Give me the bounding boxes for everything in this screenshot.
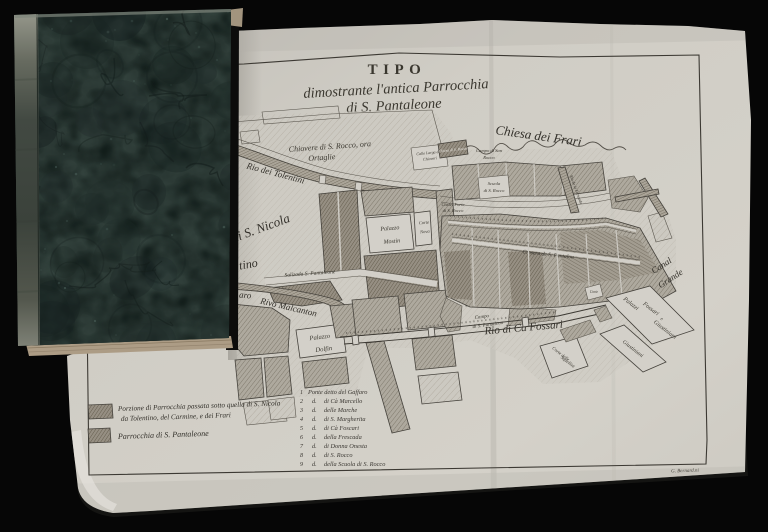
svg-text:d.: d.: [312, 425, 317, 432]
svg-text:Rocco: Rocco: [482, 155, 495, 160]
svg-text:delle Marche: delle Marche: [324, 407, 357, 414]
svg-text:3: 3: [299, 408, 303, 414]
svg-text:d.: d.: [312, 416, 317, 423]
svg-text:della Scuola di S. Rocco: della Scuola di S. Rocco: [324, 461, 385, 468]
svg-text:d.: d.: [312, 434, 317, 441]
svg-text:d.: d.: [312, 443, 317, 450]
svg-text:9: 9: [300, 462, 303, 468]
svg-text:di Donna Onesta: di Donna Onesta: [324, 443, 367, 450]
svg-text:aro: aro: [239, 290, 252, 301]
svg-text:Scuola: Scuola: [488, 181, 501, 186]
svg-text:4: 4: [300, 416, 303, 423]
svg-text:1: 1: [300, 390, 303, 396]
svg-text:di S. Rocco: di S. Rocco: [443, 208, 464, 213]
svg-text:d.: d.: [312, 398, 317, 405]
svg-text:di Cà Foscari: di Cà Foscari: [324, 425, 359, 432]
svg-text:8: 8: [300, 453, 303, 459]
svg-text:di S. Rocco: di S. Rocco: [324, 452, 353, 459]
svg-text:d.: d.: [312, 461, 317, 468]
svg-text:Ponte detto del Gaffaro: Ponte detto del Gaffaro: [307, 389, 367, 396]
svg-text:TIPO: TIPO: [368, 62, 427, 78]
svg-text:Corte: Corte: [590, 290, 599, 294]
svg-text:Campo di San: Campo di San: [476, 148, 503, 153]
svg-text:d.: d.: [312, 407, 317, 414]
svg-text:6: 6: [300, 435, 303, 441]
svg-text:2: 2: [300, 399, 303, 405]
svg-text:di Cà Marcello: di Cà Marcello: [324, 398, 362, 405]
svg-text:5: 5: [300, 426, 303, 432]
svg-text:G. Bernard.ni: G. Bernard.ni: [671, 468, 699, 474]
svg-text:della Frescada: della Frescada: [324, 434, 362, 441]
svg-text:di S. Rocco: di S. Rocco: [484, 188, 505, 193]
svg-text:Castel Forte: Castel Forte: [441, 202, 464, 207]
svg-text:Nova: Nova: [419, 229, 431, 235]
svg-text:Ortaglie: Ortaglie: [308, 152, 336, 163]
svg-text:Corte: Corte: [419, 220, 430, 226]
svg-text:di S. Margherita: di S. Margherita: [324, 416, 366, 423]
svg-text:d.: d.: [312, 452, 317, 459]
